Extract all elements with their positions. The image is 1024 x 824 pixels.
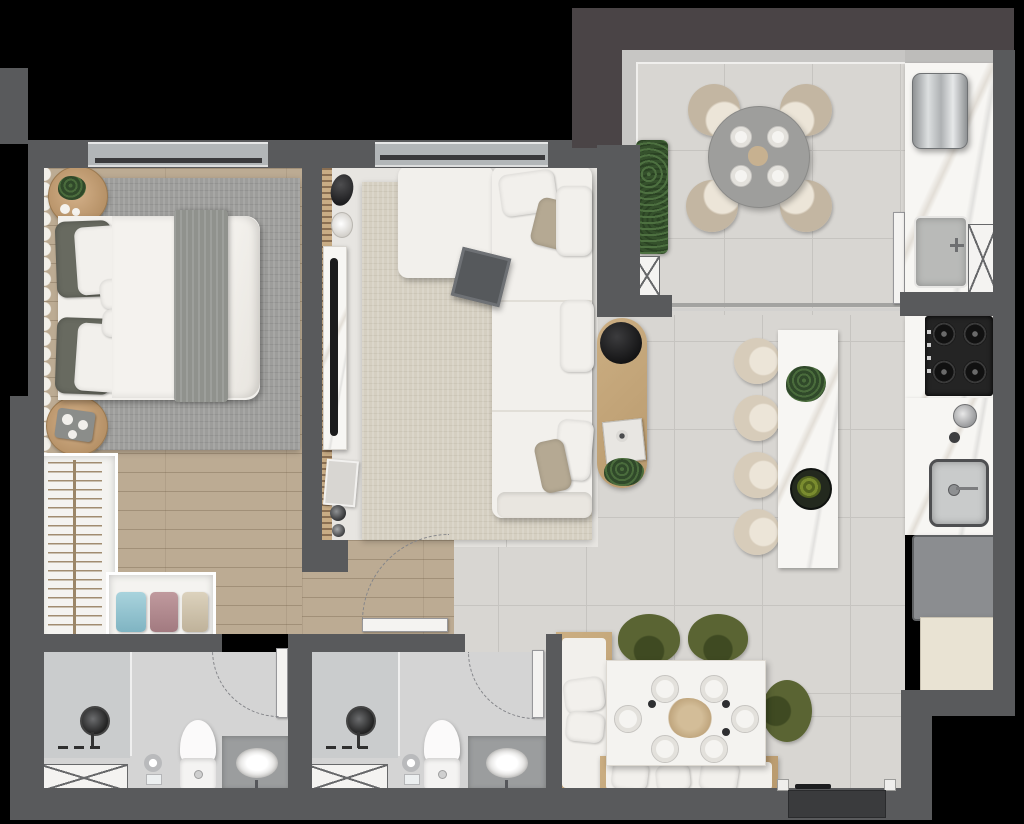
sliding-door-track2 [672, 308, 901, 311]
living-tv-soundbar [330, 258, 338, 436]
dining-plate [614, 705, 642, 733]
wall-right-step-v [901, 716, 932, 792]
bathroom2-tp-holder [402, 754, 420, 772]
bathroom2-shower-handle [358, 746, 368, 749]
terrace-wall-top [572, 8, 1014, 50]
folded-towels-blue [116, 592, 146, 632]
decor-grinder [330, 505, 346, 521]
island-stool [734, 452, 780, 498]
dining-chair-green [688, 614, 748, 662]
wall-right-step-h [901, 690, 1015, 716]
balcony-plate [730, 126, 752, 148]
counter-edge-top [905, 50, 993, 63]
dining-cup [722, 728, 730, 736]
kitchen-wall-chunk [900, 292, 995, 316]
terrace-wall-left [572, 50, 622, 148]
bedroom-window-rod [95, 158, 262, 163]
nightstand-plant [58, 176, 86, 200]
island-bowl-contents [797, 476, 821, 498]
island-stool [734, 509, 780, 555]
wall-bathroom1-top [44, 634, 222, 652]
decor-frame [323, 459, 359, 508]
balcony-plate [767, 126, 789, 148]
wall-step-balcony [597, 295, 672, 317]
bathroom2-shower-handle [342, 746, 352, 749]
dining-chair-green [618, 614, 680, 664]
wall-bathroom2-right [546, 634, 562, 792]
bathroom2-shower-handle [326, 746, 336, 749]
wall-left-upper [28, 140, 44, 402]
small-counter-item [949, 432, 960, 443]
nightstand-vase [60, 204, 70, 214]
bench-pillow [565, 710, 606, 744]
folded-towels-mauve [150, 592, 178, 632]
living-window-rod [380, 155, 545, 160]
dining-cup [648, 700, 656, 708]
sofa-armrest [497, 492, 592, 518]
island-herb-plant [786, 366, 826, 402]
wall-divider-stub [302, 540, 348, 572]
tray-cup [78, 420, 88, 430]
dining-centerpiece [668, 698, 712, 738]
wall-bathroom2-top [312, 634, 465, 652]
bathroom1-flush-button [194, 770, 203, 779]
tray-cup [68, 430, 77, 439]
floor-plan [0, 0, 1024, 824]
bathroom2-shower-zone [312, 652, 398, 758]
wall-left-lower [10, 396, 44, 792]
wardrobe-rail [73, 460, 76, 634]
coffee-maker [953, 404, 977, 428]
nightstand-vase-small [72, 208, 80, 216]
dining-plate [651, 735, 679, 763]
laundry-sink [914, 216, 968, 288]
bathroom1-basin [236, 748, 278, 778]
cooktop-burner [963, 322, 987, 346]
cooktop-burner [932, 322, 956, 346]
bathroom1-tp-holder [144, 754, 162, 772]
water-heater [912, 73, 968, 149]
sofa-pillow [560, 300, 594, 372]
cooktop-burner [963, 360, 987, 384]
entrance-door [788, 790, 886, 818]
bedroom-window [88, 142, 268, 167]
wall-right [993, 50, 1015, 692]
cream-cabinet [920, 617, 1000, 692]
bed-throw-blanket [174, 210, 228, 402]
bathroom2-glass-partition [398, 652, 400, 756]
wall-bedroom-living-divider [302, 165, 322, 572]
bathroom1-shower-zone [44, 652, 130, 758]
balcony-plate [730, 165, 752, 187]
island-stool [734, 395, 780, 441]
cooktop-burner [932, 360, 956, 384]
coffee-table-black-tray [600, 322, 642, 364]
bathroom2-shower-head [346, 706, 376, 736]
bathroom2-basin [486, 748, 528, 778]
bathroom1-shower-handle [58, 746, 68, 749]
wall-planter-divider [597, 145, 640, 317]
bathroom1-tp-roll [146, 774, 162, 785]
balcony-plate [767, 165, 789, 187]
tray-cup [62, 414, 73, 425]
decor-vase [331, 212, 353, 238]
dining-chair-green-side [762, 680, 812, 742]
laundry-faucet-v [955, 238, 958, 252]
decor-grinder-small [332, 524, 345, 537]
sliding-door-track [672, 303, 901, 307]
folded-towels-beige [182, 592, 208, 632]
sofa-pillow [556, 186, 592, 256]
dining-cup [722, 700, 730, 708]
bench-pillow [562, 675, 606, 714]
dining-plate [700, 735, 728, 763]
coffee-table-plant [604, 458, 644, 486]
dining-plate [651, 675, 679, 703]
bathroom2-flush-button [438, 770, 447, 779]
wall-top-left-stub [0, 68, 28, 144]
sofa-seam [492, 410, 592, 412]
kitchen-faucet [956, 487, 978, 490]
sliding-door-panel [893, 212, 905, 304]
bathroom2-tp-roll [404, 774, 420, 785]
bathroom1-glass-partition [130, 652, 132, 756]
cooktop-knobs [927, 330, 931, 380]
kitchen-sink-drain [948, 484, 960, 496]
balcony-centerpiece [748, 146, 768, 166]
under-counter-appliance [912, 535, 1000, 621]
wall-bathrooms-middle [288, 634, 312, 792]
balcony-planter [636, 140, 668, 254]
island-stool [734, 338, 780, 384]
dining-plate [731, 705, 759, 733]
dining-plate [700, 675, 728, 703]
entrance-door-handle [795, 784, 831, 789]
bathroom1-shower-head [80, 706, 110, 736]
bathroom1-shower-handle [74, 746, 84, 749]
bathroom1-shower-handle [90, 746, 100, 749]
coffee-table-cup [616, 430, 628, 442]
